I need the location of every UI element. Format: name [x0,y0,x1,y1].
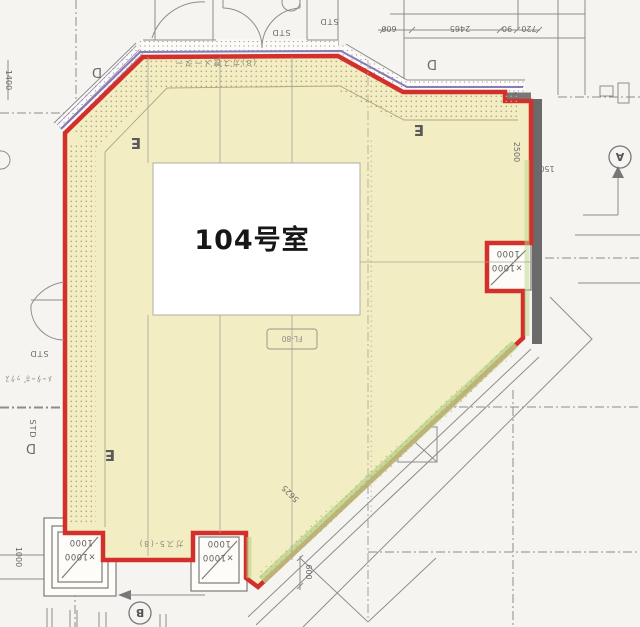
dim-top-90: 90 [502,24,512,33]
dim-left-1400: 1400 [4,70,13,90]
note-left: ﾒｰﾀｰﾎﾞｯｸｽ [4,374,52,383]
dim-right-150: 150 [539,164,554,173]
column-right-line2: ×1000 [491,262,522,272]
std-label-3: STD [29,349,48,358]
room-mark-d1: D [92,64,102,79]
note-bottom: ガス5-(8) [138,539,184,549]
room-label-box: 104号室 [153,163,360,315]
note-top: (8)ガス管メーター [174,58,256,68]
column-mid-line1: 1000 [207,538,231,548]
dim-bottom-600: 600 [304,564,313,579]
fl-label: FL-80 [281,334,302,343]
column-mid-line2: ×1000 [202,552,233,562]
wall-mark-e2: E [414,121,424,139]
grid-bubble-a: A [615,150,624,163]
room-mark-d2: D [427,56,437,71]
std-label-2: STD [319,17,338,26]
std-label-4: STD [28,419,37,438]
wall-mark-e3: E [105,446,115,464]
dim-top-720: 720 [521,24,536,33]
floor-plan-image: FL-80 104号室 E E E D D D STD STD STD STD … [0,0,640,627]
dim-top-600: 600 [381,24,396,33]
dim-right-2500: 2500 [512,142,521,162]
floor-plan-svg: FL-80 104号室 E E E D D D STD STD STD STD … [0,0,640,627]
column-left-line2: ×1000 [64,551,95,561]
grid-bubble-b: B [136,606,144,619]
column-left-line1: 1000 [69,537,93,547]
dim-top-2465: 2465 [450,24,470,33]
std-label-1: STD [271,28,290,37]
room-label: 104号室 [194,224,309,256]
wall-mark-e1: E [131,134,141,152]
room-mark-d3: D [26,440,36,455]
dim-left-1000: 1000 [14,547,23,567]
column-right-line1: 1000 [496,248,520,258]
